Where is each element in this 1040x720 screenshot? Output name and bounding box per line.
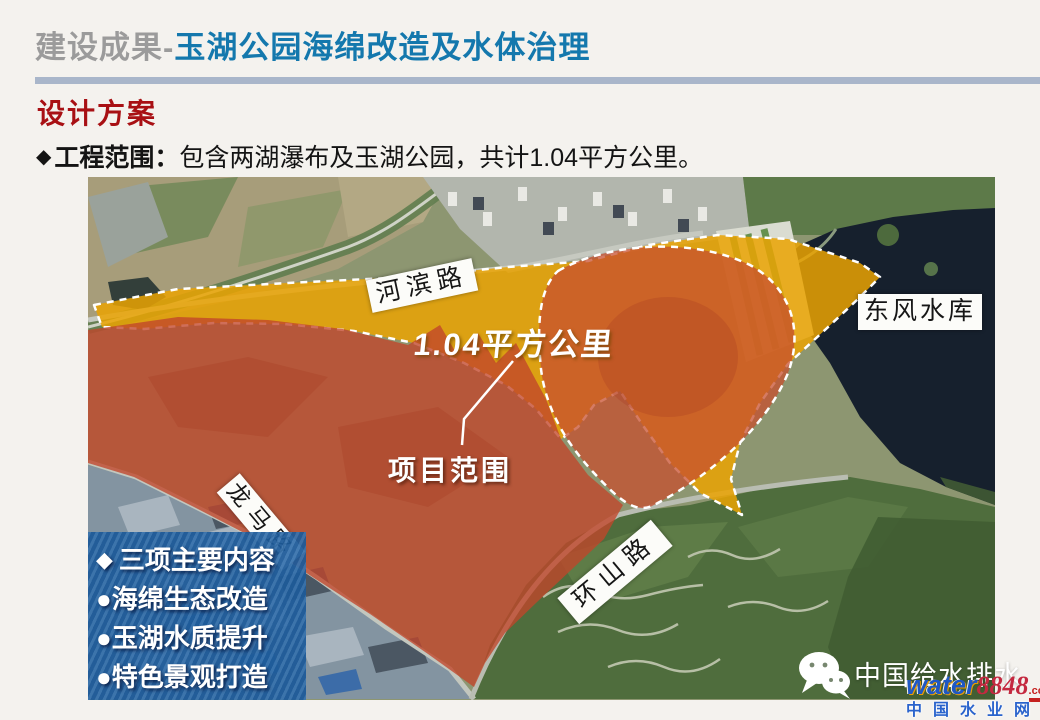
- slide-title: 建设成果-玉湖公园海绵改造及水体治理: [35, 22, 590, 67]
- section-heading: 设计方案: [37, 92, 157, 132]
- title-separator: -: [163, 30, 174, 65]
- title-main: 玉湖公园海绵改造及水体治理: [174, 30, 590, 65]
- legend-item: ●特色景观打造: [96, 658, 306, 697]
- dongfeng-reservoir-label: 东风水库: [858, 294, 982, 330]
- scope-text: 包含两湖瀑布及玉湖公园，共计1.04平方公里。: [179, 144, 703, 172]
- legend-panel: ◆三项主要内容 ●海绵生态改造 ●玉湖水质提升 ●特色景观打造: [88, 532, 306, 700]
- presentation-slide: 建设成果-玉湖公园海绵改造及水体治理 设计方案 ◆工程范围：包含两湖瀑布及玉湖公…: [0, 0, 1040, 720]
- area-annotation: 1.04平方公里: [412, 319, 617, 364]
- scope-label: 工程范围：: [54, 144, 179, 172]
- legend-item: ●玉湖水质提升: [96, 619, 306, 658]
- legend-item: ●海绵生态改造: [96, 580, 306, 619]
- project-map: 河滨路 东风水库 龙马路 环山路 1.04平方公里 项目范围 ◆三项主要内容 ●…: [88, 177, 995, 700]
- wechat-icon: [798, 650, 852, 704]
- scope-bullet-line: ◆工程范围：包含两湖瀑布及玉湖公园，共计1.04平方公里。: [36, 138, 703, 174]
- legend-title: ◆三项主要内容: [96, 540, 306, 580]
- title-divider: [35, 77, 1040, 84]
- site-cn-name: 中国水业网: [906, 696, 1040, 720]
- diamond-marker-icon: ◆: [96, 547, 113, 572]
- legend-title-text: 三项主要内容: [119, 545, 275, 575]
- scope-annotation: 项目范围: [388, 449, 512, 489]
- watermark: 中国给水排水 water8848.com 中国水业网: [798, 644, 1040, 718]
- diamond-bullet-icon: ◆: [36, 146, 51, 168]
- title-prefix: 建设成果: [35, 30, 163, 65]
